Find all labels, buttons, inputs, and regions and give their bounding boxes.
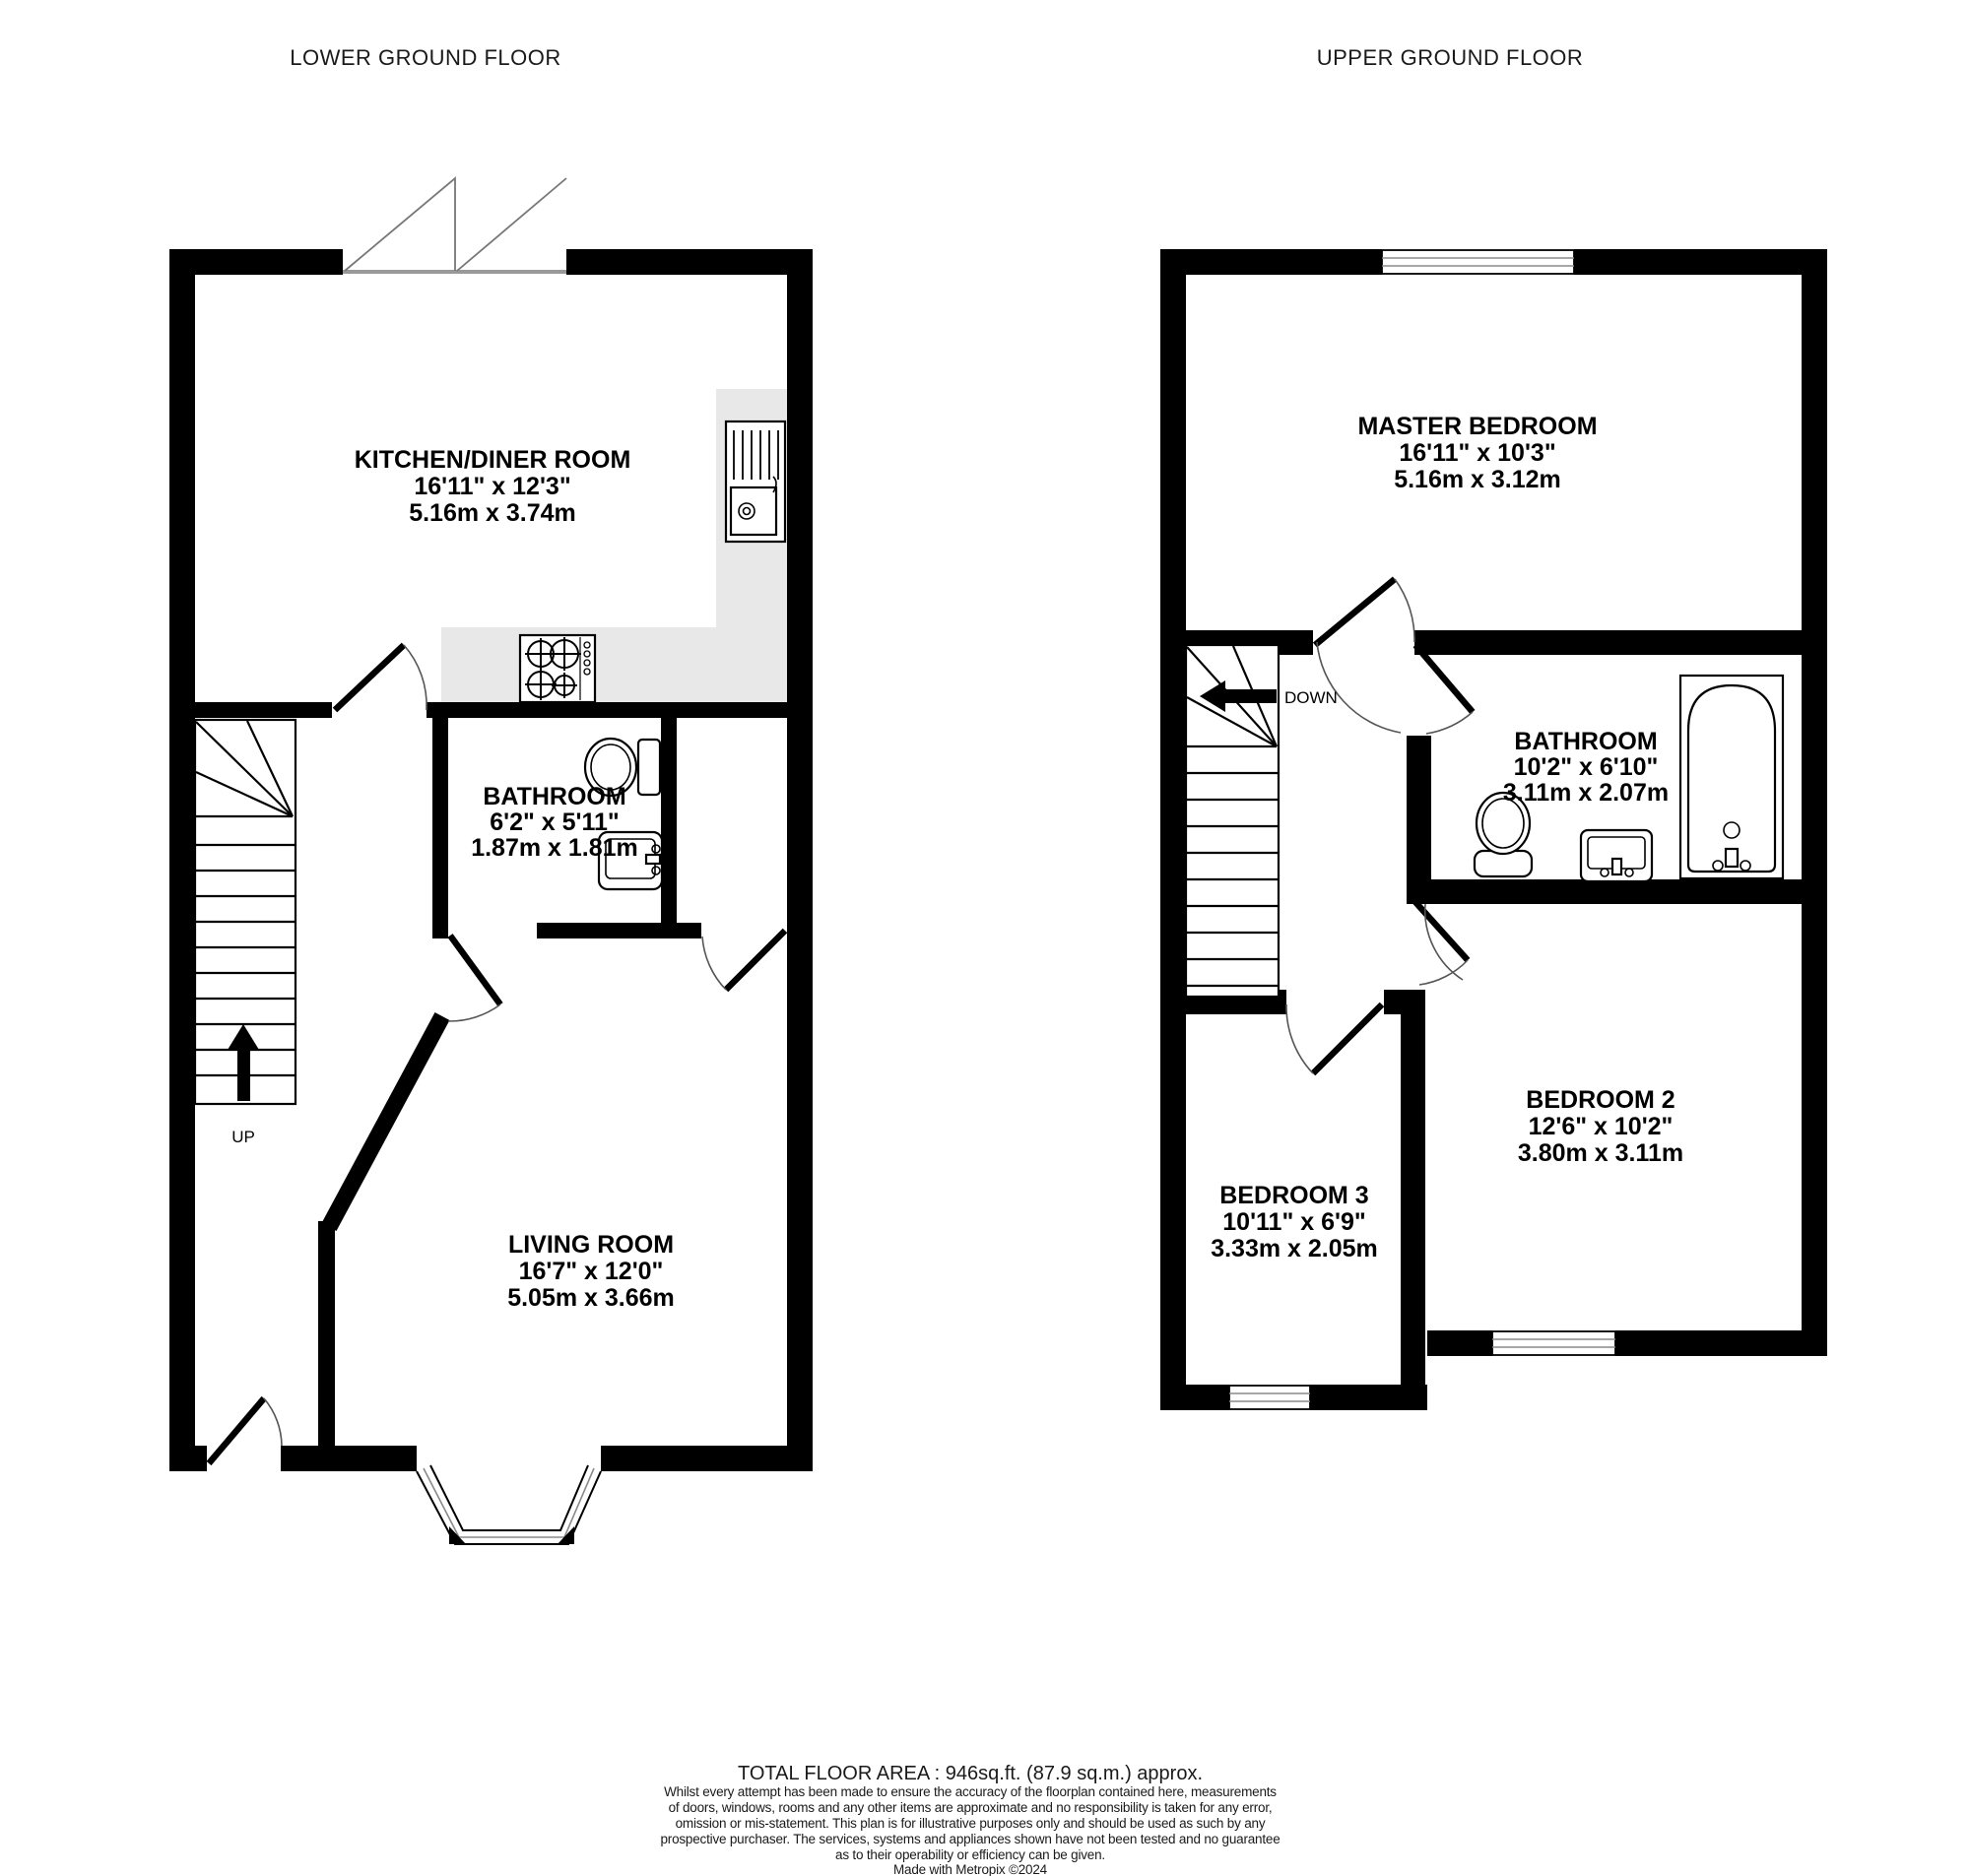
lower-bathroom-metric: 1.87m x 1.81m — [471, 834, 638, 862]
bathtub — [1680, 676, 1783, 878]
kitchen-name: KITCHEN/DINER ROOM — [355, 446, 631, 474]
total-floor-area: TOTAL FLOOR AREA : 946sq.ft. (87.9 sq.m.… — [738, 1763, 1203, 1784]
kitchen-imperial: 16'11" x 12'3" — [414, 473, 570, 500]
bedroom3-name: BEDROOM 3 — [1219, 1182, 1368, 1209]
lower-floor-title: LOWER GROUND FLOOR — [290, 45, 560, 70]
stairs-down: DOWN — [1186, 645, 1338, 997]
upper-floor-title: UPPER GROUND FLOOR — [1317, 45, 1584, 70]
upper-basin — [1581, 830, 1652, 881]
stairs-up: UP — [195, 720, 295, 1146]
kitchen-door — [335, 645, 427, 710]
bay-window — [417, 1465, 601, 1544]
bedroom3-window — [1229, 1386, 1310, 1409]
disclaimer-line-1: Whilst every attempt has been made to en… — [664, 1784, 1277, 1799]
room-label-kitchen: KITCHEN/DINER ROOM 16'11" x 12'3" 5.16m … — [355, 446, 631, 527]
floorplan-canvas: LOWER GROUND FLOOR — [0, 0, 1970, 1876]
disclaimer-line-3: omission or mis-statement. This plan is … — [676, 1816, 1266, 1831]
footer: TOTAL FLOOR AREA : 946sq.ft. (87.9 sq.m.… — [660, 1763, 1280, 1876]
master-imperial: 16'11" x 10'3" — [1399, 439, 1555, 467]
upper-bathroom-name: BATHROOM — [1514, 728, 1657, 755]
folding-door — [343, 178, 566, 274]
up-label: UP — [231, 1128, 255, 1146]
disclaimer-line-2: of doors, windows, rooms and any other i… — [669, 1800, 1273, 1815]
master-name: MASTER BEDROOM — [1357, 413, 1597, 440]
upper-ground-floor-plan: UPPER GROUND FLOOR — [1160, 45, 1827, 1410]
bedroom2-window — [1492, 1331, 1615, 1355]
lower-bathroom-name: BATHROOM — [483, 783, 625, 810]
master-bedroom-window — [1382, 250, 1574, 274]
upper-bathroom-imperial: 10'2" x 6'10" — [1514, 753, 1659, 781]
entrance-door — [209, 1398, 282, 1463]
bedroom2-metric: 3.80m x 3.11m — [1518, 1139, 1683, 1167]
living-room-door — [702, 931, 785, 990]
master-metric: 5.16m x 3.12m — [1394, 466, 1561, 493]
upper-bathroom-door — [1415, 645, 1473, 734]
living-room-metric: 5.05m x 3.66m — [507, 1284, 675, 1312]
bedroom2-imperial: 12'6" x 10'2" — [1529, 1113, 1674, 1140]
kitchen-sink-unit — [726, 421, 785, 542]
kitchen-metric: 5.16m x 3.74m — [409, 499, 576, 527]
hob — [520, 635, 595, 702]
bedroom3-door — [1286, 1004, 1382, 1073]
metropix-credit: Made with Metropix ©2024 — [893, 1862, 1048, 1876]
bedroom3-metric: 3.33m x 2.05m — [1211, 1235, 1378, 1262]
down-label: DOWN — [1284, 688, 1338, 707]
bedroom2-name: BEDROOM 2 — [1526, 1086, 1674, 1114]
living-room-imperial: 16'7" x 12'0" — [519, 1258, 664, 1285]
upper-bathroom-metric: 3.11m x 2.07m — [1503, 779, 1669, 807]
floorplan-page: LOWER GROUND FLOOR — [0, 0, 1970, 1876]
room-label-lower-bathroom: BATHROOM 6'2" x 5'11" 1.87m x 1.81m — [471, 783, 638, 862]
room-label-living-room: LIVING ROOM 16'7" x 12'0" 5.05m x 3.66m — [507, 1231, 675, 1312]
lower-ground-floor-plan: LOWER GROUND FLOOR — [169, 45, 813, 1544]
room-label-bedroom2: BEDROOM 2 12'6" x 10'2" 3.80m x 3.11m — [1518, 1086, 1683, 1167]
lower-bathroom-door — [448, 936, 500, 1021]
bedroom2-door — [1415, 902, 1468, 985]
bedroom3-imperial: 10'11" x 6'9" — [1222, 1208, 1365, 1236]
living-room-name: LIVING ROOM — [508, 1231, 674, 1259]
disclaimer: Whilst every attempt has been made to en… — [660, 1784, 1280, 1862]
master-bedroom-door — [1315, 579, 1414, 733]
room-label-upper-bathroom: BATHROOM 10'2" x 6'10" 3.11m x 2.07m — [1503, 728, 1669, 807]
disclaimer-line-5: as to their operability or efficiency ca… — [835, 1847, 1105, 1862]
room-label-master-bedroom: MASTER BEDROOM 16'11" x 10'3" 5.16m x 3.… — [1357, 413, 1597, 493]
lower-bathroom-imperial: 6'2" x 5'11" — [490, 809, 620, 836]
room-label-bedroom3: BEDROOM 3 10'11" x 6'9" 3.33m x 2.05m — [1211, 1182, 1378, 1262]
disclaimer-line-4: prospective purchaser. The services, sys… — [660, 1832, 1280, 1846]
